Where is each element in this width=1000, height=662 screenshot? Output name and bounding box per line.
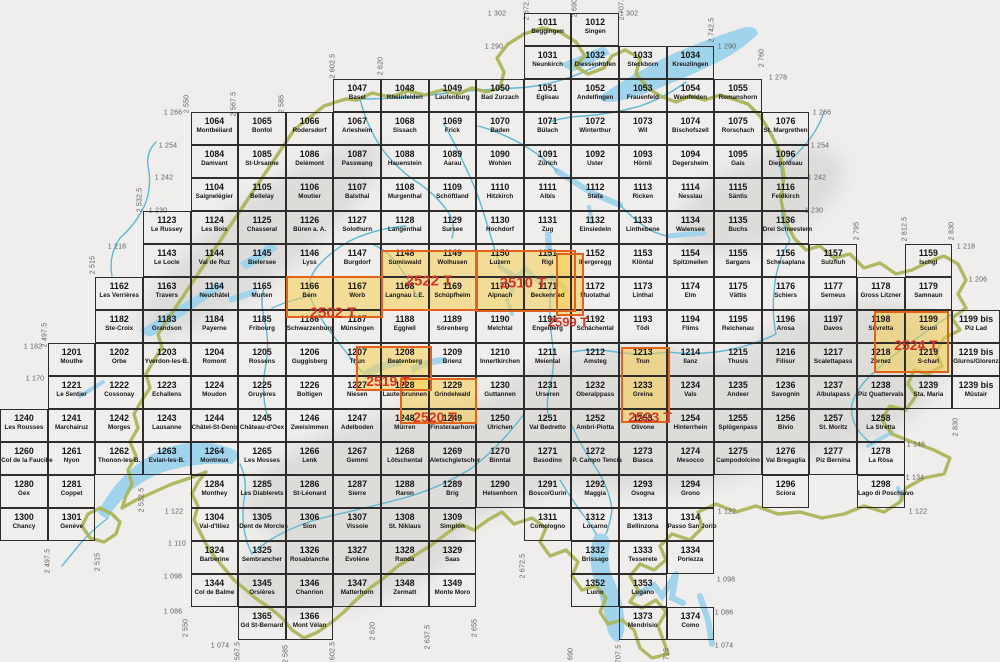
map-sheet-cell-1012[interactable]: 1012Singen [571,13,619,46]
map-sheet-cell-1049[interactable]: 1049Laufenburg [429,79,477,112]
sheet-number: 1107 [334,183,380,193]
sheet-name: Saas [430,556,476,563]
map-sheet-cell-1174[interactable]: 1174Elm [667,277,715,310]
map-sheet-cell-1148[interactable]: 1148Sumiswald [381,244,429,277]
map-sheet-cell-1127[interactable]: 1127Solothurn [333,211,381,244]
sheet-number: 1169 [430,282,476,292]
map-sheet-cell-1084[interactable]: 1084Damvant [191,145,239,178]
map-sheet-cell-1292[interactable]: 1292Maggia [571,475,619,508]
sheet-number: 1273 [620,447,666,457]
map-sheet-cell-1232[interactable]: 1232Oberalppass [571,376,619,409]
map-sheet-cell-1314[interactable]: 1314Passo San Jorio [667,508,715,541]
map-sheet-cell-1208[interactable]: 1208Beatenberg [381,343,429,376]
sheet-number: 1275 [715,447,761,457]
map-sheet-cell-1087[interactable]: 1087Passwang [333,145,381,178]
sheet-name: Bellelay [239,193,285,200]
map-sheet-cell-1309[interactable]: 1309Simplon [429,508,477,541]
map-sheet-cell-1186[interactable]: 1186Schwarzenburg [286,310,334,343]
map-sheet-cell-1306[interactable]: 1306Sion [286,508,334,541]
map-sheet-cell-1214[interactable]: 1214Ilanz [667,343,715,376]
sheet-number: 1224 [192,381,238,391]
map-sheet-cell-1114[interactable]: 1114Nesslau [667,178,715,211]
map-sheet-cell-1054[interactable]: 1054Weinfelden [667,79,715,112]
map-sheet-cell-1129[interactable]: 1129Sursee [429,211,477,244]
map-sheet-cell-1076[interactable]: 1076St. Margrethen [762,112,810,145]
map-sheet-cell-1192[interactable]: 1192Schächental [571,310,619,343]
map-sheet-cell-1196[interactable]: 1196Arosa [762,310,810,343]
map-sheet-cell-1075[interactable]: 1075Rorschach [714,112,762,145]
map-sheet-cell-1199[interactable]: 1199Scuol [905,310,953,343]
sheet-name: Lausanne [144,424,190,431]
map-sheet-cell-1264[interactable]: 1264Montreux [191,442,239,475]
map-sheet-cell-1130[interactable]: 1130Hochdorf [476,211,524,244]
map-sheet-cell-1064[interactable]: 1064Montbéliard [191,112,239,145]
map-sheet-cell-1107[interactable]: 1107Balsthal [333,178,381,211]
map-sheet-cell-1152[interactable]: 1152Ibergeregg [571,244,619,277]
map-sheet-cell-1268[interactable]: 1268Lötschental [381,442,429,475]
map-sheet-cell-1215[interactable]: 1215Thusis [714,343,762,376]
map-sheet-cell-1313[interactable]: 1313Bellinzona [619,508,667,541]
map-sheet-cell-1182[interactable]: 1182Ste-Croix [95,310,143,343]
map-sheet-cell-1207[interactable]: 1207Thun [333,343,381,376]
map-sheet-cell-1094[interactable]: 1094Degersheim [667,145,715,178]
sheet-number: 1225 [239,381,285,391]
map-sheet-cell-1263[interactable]: 1263Evian-les-B. [143,442,191,475]
map-sheet-cell-1162[interactable]: 1162Les Verrières [95,277,143,310]
map-sheet-cell-1179[interactable]: 1179Samnaun [905,277,953,310]
map-sheet-cell-1109[interactable]: 1109Schöftland [429,178,477,211]
map-sheet-cell-1157[interactable]: 1157Sulzfluh [809,244,857,277]
map-sheet-cell-1217[interactable]: 1217Scalettapass [809,343,857,376]
map-sheet-cell-1276[interactable]: 1276Val Bregaglia [762,442,810,475]
map-sheet-cell-1225[interactable]: 1225Gruyères [238,376,286,409]
map-sheet-cell-1213[interactable]: 1213Trun [619,343,667,376]
map-sheet-cell-1052[interactable]: 1052Andelfingen [571,79,619,112]
map-sheet-cell-1212[interactable]: 1212Amsteg [571,343,619,376]
sheet-name: Travers [144,292,190,299]
map-sheet-cell-1198[interactable]: 1198Silvretta [857,310,905,343]
map-sheet-cell-1260[interactable]: 1260Col de la Faucille [0,442,48,475]
sheet-number: 1166 [287,282,333,292]
map-sheet-cell-1288[interactable]: 1288Raron [381,475,429,508]
map-sheet-cell-1227[interactable]: 1227Niesen [333,376,381,409]
sheet-number: 1211 [525,348,571,358]
map-sheet-cell-1123[interactable]: 1123Le Russey [143,211,191,244]
map-sheet-cell-1327[interactable]: 1327Evolène [333,541,381,574]
map-sheet-cell-1344[interactable]: 1344Col de Balme [191,574,239,607]
map-sheet-cell-1089[interactable]: 1089Aarau [429,145,477,178]
map-sheet-cell-1261[interactable]: 1261Nyon [48,442,96,475]
sheet-number: 1199 [906,315,952,325]
map-sheet-cell-1091[interactable]: 1091Zürich [524,145,572,178]
map-sheet-cell-1177[interactable]: 1177Serneus [809,277,857,310]
map-sheet-cell-1365[interactable]: 1365Gd St-Bernard [238,607,286,640]
sheet-name: Lyss [287,259,333,266]
map-sheet-cell-1265[interactable]: 1265Les Mosses [238,442,286,475]
map-sheet-cell-1294[interactable]: 1294Grono [667,475,715,508]
map-sheet-cell-1132[interactable]: 1132Einsiedeln [571,211,619,244]
map-sheet-cell-1176[interactable]: 1176Schiers [762,277,810,310]
map-sheet-cell-1211[interactable]: 1211Meiental [524,343,572,376]
map-sheet-cell-1155[interactable]: 1155Sargans [714,244,762,277]
map-sheet-cell-1348[interactable]: 1348Zermatt [381,574,429,607]
sheet-name: Boltigen [287,391,333,398]
map-sheet-cell-1353[interactable]: 1353Lugano [619,574,667,607]
map-sheet-cell-1151[interactable]: 1151Rigi [524,244,572,277]
sheet-name: Mesocco [668,457,714,464]
map-sheet-cell-1202[interactable]: 1202Orbe [95,343,143,376]
map-sheet-cell-1145[interactable]: 1145Bielersee [238,244,286,277]
map-sheet-cell-1032[interactable]: 1032Diessenhofen [571,46,619,79]
map-sheet-cell-1333[interactable]: 1333Tesserete [619,541,667,574]
map-sheet-cell-1190[interactable]: 1190Melchtal [476,310,524,343]
map-sheet-cell-1189[interactable]: 1189Sörenberg [429,310,477,343]
sheet-name: Neunkirch [525,61,571,68]
sheet-number: 1085 [239,150,285,160]
map-sheet-cell-1164[interactable]: 1164Neuchâtel [191,277,239,310]
map-sheet-cell-1366[interactable]: 1366Mont Vélan [286,607,334,640]
map-sheet-cell-1173[interactable]: 1173Linthal [619,277,667,310]
map-sheet-cell-1298[interactable]: 1298Lago di Poschiavo [857,475,905,508]
map-sheet-cell-1072[interactable]: 1072Winterthur [571,112,619,145]
map-sheet-cell-1218[interactable]: 1218Zernez [857,343,905,376]
map-sheet-cell-1191[interactable]: 1191Engelberg [524,310,572,343]
map-sheet-cell-1374[interactable]: 1374Como [667,607,715,640]
map-sheet-cell-1199bis[interactable]: 1199 bisPiz Lad [952,310,1000,343]
map-sheet-cell-1051[interactable]: 1051Eglisau [524,79,572,112]
map-sheet-cell-1238[interactable]: 1238Piz Quattervals [857,376,905,409]
map-sheet-cell-1204[interactable]: 1204Romont [191,343,239,376]
map-sheet-cell-1296[interactable]: 1296Sciora [762,475,810,508]
map-sheet-cell-1074[interactable]: 1074Bischofszell [667,112,715,145]
map-sheet-cell-1301[interactable]: 1301Genève [48,508,96,541]
map-sheet-cell-1033[interactable]: 1033Steckborn [619,46,667,79]
map-sheet-cell-1104[interactable]: 1104Saignelégier [191,178,239,211]
map-sheet-cell-1131[interactable]: 1131Zug [524,211,572,244]
map-sheet-cell-1235[interactable]: 1235Andeer [714,376,762,409]
map-sheet-cell-1326[interactable]: 1326Rosablanche [286,541,334,574]
sheet-name: Neuchâtel [192,292,238,299]
map-sheet-cell-1274[interactable]: 1274Mesocco [667,442,715,475]
sheet-number: 1216 [763,348,809,358]
map-sheet-cell-1258[interactable]: 1258La Stretta [857,409,905,442]
map-sheet-cell-1237[interactable]: 1237Albulapass [809,376,857,409]
map-sheet-cell-1069[interactable]: 1069Frick [429,112,477,145]
map-sheet-cell-1133[interactable]: 1133Linthebene [619,211,667,244]
map-sheet-cell-1305[interactable]: 1305Dent de Morcles [238,508,286,541]
sheet-number: 1146 [287,249,333,259]
map-sheet-cell-1256[interactable]: 1256Bivio [762,409,810,442]
map-sheet-cell-1206[interactable]: 1206Guggisberg [286,343,334,376]
sheet-number: 1249 [430,414,476,424]
map-sheet-cell-1228[interactable]: 1228Lauterbrunnen [381,376,429,409]
map-sheet-cell-1270[interactable]: 1270Binntal [476,442,524,475]
map-sheet-cell-1243[interactable]: 1243Lausanne [143,409,191,442]
sheet-number: 1176 [763,282,809,292]
map-sheet-cell-1175[interactable]: 1175Vättis [714,277,762,310]
map-sheet-cell-1168[interactable]: 1168Langnau i. E. [381,277,429,310]
map-sheet-cell-1011[interactable]: 1011Beggingen [524,13,572,46]
sheet-name: La Stretta [858,424,904,431]
map-sheet-cell-1291[interactable]: 1291Bosco/Gurin [524,475,572,508]
map-sheet-cell-1349[interactable]: 1349Monte Moro [429,574,477,607]
sheet-name: Ambri-Piotta [572,424,618,431]
map-sheet-cell-1224[interactable]: 1224Moudon [191,376,239,409]
map-sheet-cell-1241[interactable]: 1241Marchairuz [48,409,96,442]
map-sheet-cell-1065[interactable]: 1065Bonfol [238,112,286,145]
map-sheet-cell-1156[interactable]: 1156Schesaplana [762,244,810,277]
sheet-number: 1093 [620,150,666,160]
map-sheet-cell-1105[interactable]: 1105Bellelay [238,178,286,211]
map-sheet-cell-1247[interactable]: 1247Adelboden [333,409,381,442]
map-sheet-cell-1223[interactable]: 1223Echallens [143,376,191,409]
map-sheet-cell-1307[interactable]: 1307Vissoie [333,508,381,541]
map-sheet-cell-1031[interactable]: 1031Neunkirch [524,46,572,79]
map-sheet-cell-1048[interactable]: 1048Rheinfelden [381,79,429,112]
map-sheet-cell-1293[interactable]: 1293Osogna [619,475,667,508]
map-sheet-cell-1209[interactable]: 1209Brienz [429,343,477,376]
sheet-name: Zernez [858,358,904,365]
map-sheet-cell-1093[interactable]: 1093Hörnli [619,145,667,178]
map-sheet-cell-1146[interactable]: 1146Lyss [286,244,334,277]
map-sheet-cell-1092[interactable]: 1092Uster [571,145,619,178]
sheet-number: 1325 [239,546,285,556]
map-sheet-cell-1135[interactable]: 1135Buchs [714,211,762,244]
map-sheet-cell-1112[interactable]: 1112Stäfa [571,178,619,211]
map-sheet-cell-1128[interactable]: 1128Langenthal [381,211,429,244]
map-sheet-cell-1193[interactable]: 1193Tödi [619,310,667,343]
map-sheet-cell-1222[interactable]: 1222Cossonay [95,376,143,409]
map-sheet-cell-1248[interactable]: 1248Mürren [381,409,429,442]
map-sheet-cell-1324[interactable]: 1324Barberine [191,541,239,574]
map-sheet-cell-1273[interactable]: 1273Biasca [619,442,667,475]
map-sheet-cell-1308[interactable]: 1308St. Niklaus [381,508,429,541]
sheet-name: Saignelégier [192,193,238,200]
sheet-number: 1034 [668,51,714,61]
map-sheet-cell-1106[interactable]: 1106Moutier [286,178,334,211]
sheet-number: 1182 [96,315,142,325]
sheet-number: 1301 [49,513,95,523]
map-sheet-cell-1230[interactable]: 1230Guttannen [476,376,524,409]
sheet-name: Comologno [525,523,571,530]
map-sheet-cell-1226[interactable]: 1226Boltigen [286,376,334,409]
map-sheet-cell-1233[interactable]: 1233Greina [619,376,667,409]
map-sheet-cell-1108[interactable]: 1108Murgenthal [381,178,429,211]
map-sheet-cell-1272[interactable]: 1272P. Campo Tencia [571,442,619,475]
map-sheet-cell-1239[interactable]: 1239Sta. Maria [905,376,953,409]
map-sheet-cell-1281[interactable]: 1281Coppet [48,475,96,508]
map-sheet-cell-1178[interactable]: 1178Gross Litzner [857,277,905,310]
map-sheet-cell-1304[interactable]: 1304Val-d'Illiez [191,508,239,541]
map-sheet-cell-1136[interactable]: 1136Drei Schwestern [762,211,810,244]
map-sheet-cell-1096[interactable]: 1096Diepoldsau [762,145,810,178]
map-sheet-cell-1110[interactable]: 1110Hitzkirch [476,178,524,211]
map-sheet-cell-1159[interactable]: 1159Ischgl [905,244,953,277]
map-sheet-cell-1329[interactable]: 1329Saas [429,541,477,574]
map-sheet-cell-1195[interactable]: 1195Reichenau [714,310,762,343]
map-sheet-cell-1347[interactable]: 1347Matterhorn [333,574,381,607]
map-sheet-cell-1071[interactable]: 1071Bülach [524,112,572,145]
sheet-name: Simplon [430,523,476,530]
map-sheet-cell-1172[interactable]: 1172Muotathal [571,277,619,310]
sheet-number: 1124 [192,216,238,226]
map-sheet-cell-1311[interactable]: 1311Comologno [524,508,572,541]
map-sheet-cell-1262[interactable]: 1262Thonon-les-B. [95,442,143,475]
map-sheet-cell-1201[interactable]: 1201Mouthe [48,343,96,376]
sheet-number: 1258 [858,414,904,424]
map-sheet-cell-1187[interactable]: 1187Münsingen [333,310,381,343]
map-sheet-cell-1219[interactable]: 1219S-charl [905,343,953,376]
map-sheet-cell-1210[interactable]: 1210Innertkirchen [476,343,524,376]
map-sheet-cell-1034[interactable]: 1034Kreuzlingen [667,46,715,79]
map-sheet-cell-1125[interactable]: 1125Chasseral [238,211,286,244]
map-sheet-cell-1154[interactable]: 1154Spitzmeilen [667,244,715,277]
map-sheet-cell-1267[interactable]: 1267Gemmi [333,442,381,475]
map-sheet-cell-1231[interactable]: 1231Urseren [524,376,572,409]
map-sheet-cell-1085[interactable]: 1085St-Ursanne [238,145,286,178]
sheet-number: 1110 [477,183,523,193]
map-sheet-cell-1244[interactable]: 1244Châtel-St-Denis [191,409,239,442]
map-sheet-cell-1250[interactable]: 1250Ulrichen [476,409,524,442]
map-sheet-cell-1194[interactable]: 1194Flims [667,310,715,343]
map-sheet-cell-1153[interactable]: 1153Klöntal [619,244,667,277]
map-sheet-cell-1352[interactable]: 1352Luino [571,574,619,607]
map-sheet-cell-1219bis[interactable]: 1219 bisGlurns/Glorenza [952,343,1000,376]
map-sheet-cell-1334[interactable]: 1334Porlezza [667,541,715,574]
map-sheet-cell-1166[interactable]: 1166Bern [286,277,334,310]
map-sheet-cell-1239bis[interactable]: 1239 bisMüstair [952,376,1000,409]
map-sheet-cell-1271[interactable]: 1271Basodino [524,442,572,475]
map-sheet-cell-1255[interactable]: 1255Splügenpass [714,409,762,442]
map-sheet-cell-1312[interactable]: 1312Locarno [571,508,619,541]
sheet-number: 1072 [572,117,618,127]
map-sheet-cell-1169[interactable]: 1169Schüpfheim [429,277,477,310]
map-sheet-cell-1229[interactable]: 1229Grindelwald [429,376,477,409]
sheet-number: 1252 [572,414,618,424]
map-sheet-cell-1070[interactable]: 1070Baden [476,112,524,145]
map-sheet-cell-1290[interactable]: 1290Helsenhorn [476,475,524,508]
map-sheet-cell-1205[interactable]: 1205Rossens [238,343,286,376]
map-sheet-cell-1116[interactable]: 1116Feldkirch [762,178,810,211]
map-sheet-cell-1171[interactable]: 1171Beckenried [524,277,572,310]
map-sheet-cell-1163[interactable]: 1163Travers [143,277,191,310]
sheet-number: 1334 [668,546,714,556]
sheet-number: 1268 [382,447,428,457]
sheet-number: 1313 [620,513,666,523]
map-sheet-cell-1245[interactable]: 1245Château-d'Oex [238,409,286,442]
map-sheet-cell-1167[interactable]: 1167Worb [333,277,381,310]
sheet-name: Passwang [334,160,380,167]
map-sheet-cell-1254[interactable]: 1254Hinterrhein [667,409,715,442]
map-sheet-cell-1280[interactable]: 1280Gex [0,475,48,508]
map-sheet-cell-1170[interactable]: 1170Alpnach [476,277,524,310]
map-sheet-cell-1253[interactable]: 1253Olivone [619,409,667,442]
map-sheet-cell-1147[interactable]: 1147Burgdorf [333,244,381,277]
map-sheet-cell-1246[interactable]: 1246Zweisimmen [286,409,334,442]
map-sheet-cell-1113[interactable]: 1113Ricken [619,178,667,211]
map-sheet-cell-1252[interactable]: 1252Ambri-Piotta [571,409,619,442]
map-sheet-cell-1086[interactable]: 1086Delémont [286,145,334,178]
map-sheet-cell-1124[interactable]: 1124Les Bois [191,211,239,244]
sheet-name: Les Diablerets [239,490,285,497]
map-sheet-cell-1221[interactable]: 1221Le Sentier [48,376,96,409]
map-sheet-cell-1150[interactable]: 1150Luzern [476,244,524,277]
map-sheet-cell-1184[interactable]: 1184Payerne [191,310,239,343]
map-sheet-cell-1197[interactable]: 1197Davos [809,310,857,343]
sheet-number: 1133 [620,216,666,226]
map-sheet-cell-1284[interactable]: 1284Monthey [191,475,239,508]
map-sheet-cell-1165[interactable]: 1165Murten [238,277,286,310]
map-sheet-cell-1289[interactable]: 1289Brig [429,475,477,508]
map-sheet-cell-1203[interactable]: 1203Yverdon-les-B. [143,343,191,376]
map-sheet-cell-1300[interactable]: 1300Chancy [0,508,48,541]
map-sheet-cell-1346[interactable]: 1346Chanrion [286,574,334,607]
map-sheet-cell-1149[interactable]: 1149Wolhusen [429,244,477,277]
map-sheet-cell-1115[interactable]: 1115Säntis [714,178,762,211]
map-sheet-cell-1050[interactable]: 1050Bad Zurzach [476,79,524,112]
map-sheet-cell-1188[interactable]: 1188Eggiwil [381,310,429,343]
map-sheet-cell-1090[interactable]: 1090Wohlen [476,145,524,178]
map-sheet-cell-1240[interactable]: 1240Les Rousses [0,409,48,442]
map-sheet-cell-1325[interactable]: 1325Sembrancher [238,541,286,574]
map-sheet-cell-1073[interactable]: 1073Wil [619,112,667,145]
map-sheet-cell-1249[interactable]: 1249Finsteraarhorn [429,409,477,442]
map-sheet-cell-1257[interactable]: 1257St. Moritz [809,409,857,442]
map-sheet-cell-1287[interactable]: 1287Sierre [333,475,381,508]
map-sheet-cell-1236[interactable]: 1236Savognin [762,376,810,409]
map-sheet-cell-1345[interactable]: 1345Orsières [238,574,286,607]
map-sheet-cell-1285[interactable]: 1285Les Diablerets [238,475,286,508]
sheet-number: 1277 [810,447,856,457]
map-sheet-cell-1269[interactable]: 1269Aletschgletscher [429,442,477,475]
sheet-name: Ricken [620,193,666,200]
sheet-name: Piz Lad [953,325,999,332]
map-sheet-cell-1332[interactable]: 1332Brissago [571,541,619,574]
map-sheet-cell-1373[interactable]: 1373Mendrisio [619,607,667,640]
map-sheet-cell-1234[interactable]: 1234Vals [667,376,715,409]
map-sheet-cell-1055[interactable]: 1055Romanshorn [714,79,762,112]
sheet-number: 1365 [239,612,285,622]
map-sheet-cell-1251[interactable]: 1251Val Bedretto [524,409,572,442]
map-sheet-cell-1134[interactable]: 1134Walensee [667,211,715,244]
map-sheet-cell-1286[interactable]: 1286St-Léonard [286,475,334,508]
sheet-name: Le Russey [144,226,190,233]
map-sheet-cell-1047[interactable]: 1047Basel [333,79,381,112]
map-sheet-cell-1088[interactable]: 1088Hauenstein [381,145,429,178]
sheet-name: Thusis [715,358,761,365]
map-sheet-cell-1242[interactable]: 1242Morges [95,409,143,442]
map-sheet-cell-1068[interactable]: 1068Sissach [381,112,429,145]
sheet-name: St. Moritz [810,424,856,431]
map-sheet-cell-1278[interactable]: 1278La Rösa [857,442,905,475]
map-sheet-cell-1095[interactable]: 1095Gais [714,145,762,178]
map-sheet-cell-1275[interactable]: 1275Campodolcino [714,442,762,475]
map-sheet-cell-1053[interactable]: 1053Frauenfeld [619,79,667,112]
map-sheet-cell-1126[interactable]: 1126Büren a. A. [286,211,334,244]
map-sheet-cell-1144[interactable]: 1144Val de Ruz [191,244,239,277]
map-sheet-cell-1216[interactable]: 1216Filisur [762,343,810,376]
map-sheet-cell-1111[interactable]: 1111Albis [524,178,572,211]
map-sheet-cell-1328[interactable]: 1328Randa [381,541,429,574]
map-sheet-cell-1143[interactable]: 1143Le Locle [143,244,191,277]
map-sheet-cell-1185[interactable]: 1185Fribourg [238,310,286,343]
sheet-name: Coppet [49,490,95,497]
map-sheet-cell-1066[interactable]: 1066Rodersdorf [286,112,334,145]
map-sheet-cell-1067[interactable]: 1067Arlesheim [333,112,381,145]
map-sheet-cell-1183[interactable]: 1183Grandson [143,310,191,343]
map-sheet-cell-1277[interactable]: 1277Piz Bernina [809,442,857,475]
map-sheet-cell-1266[interactable]: 1266Lenk [286,442,334,475]
